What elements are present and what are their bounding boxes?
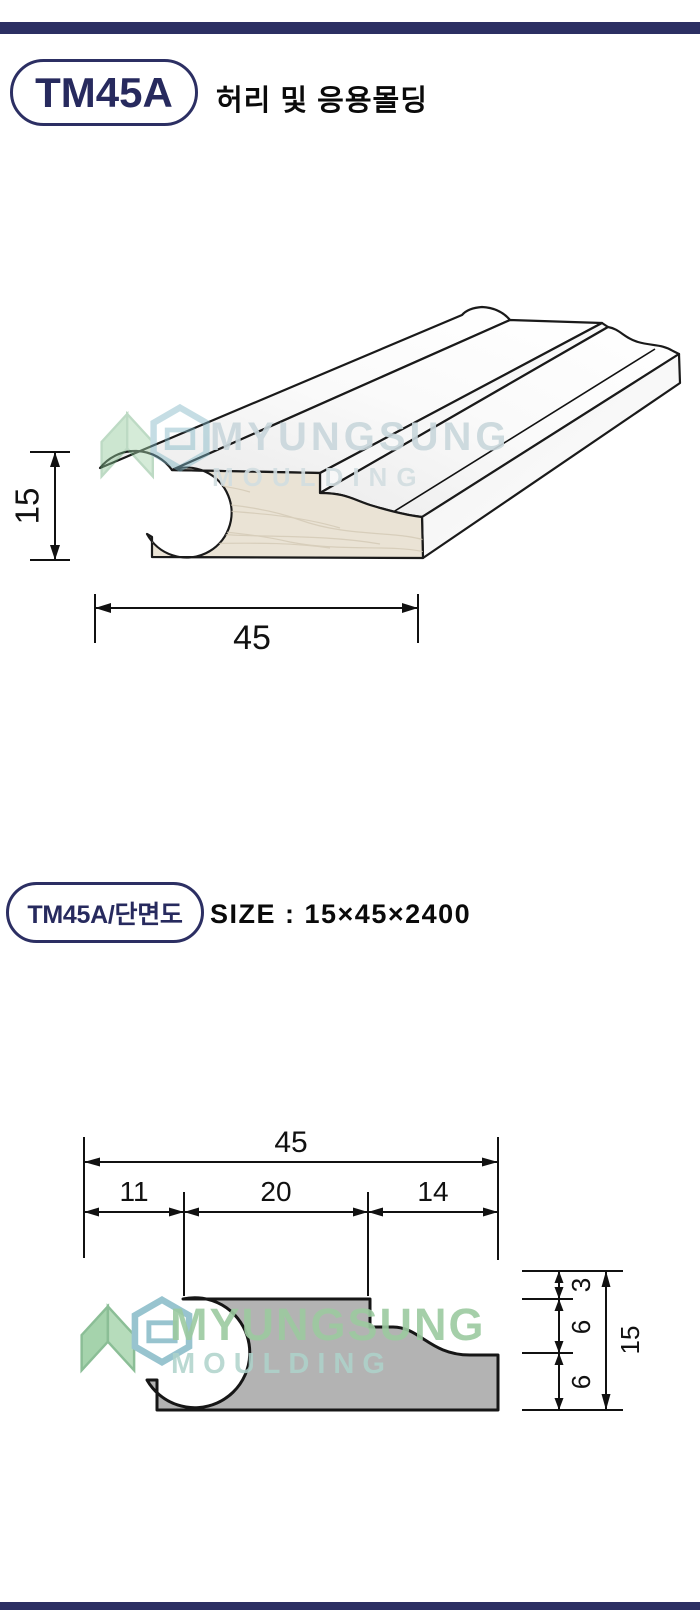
dim-total-height: 15 — [602, 1271, 645, 1410]
dim-width-45: 45 — [95, 594, 418, 650]
watermark-sub-text: MOULDING — [171, 1348, 393, 1380]
dim-height-15: 15 — [9, 452, 70, 560]
bottom-accent-bar — [0, 1602, 700, 1610]
product-code-badge: TM45A — [10, 59, 198, 126]
perspective-drawing: 15 45 MYUNGSUNG MOULDING — [0, 280, 700, 650]
top-accent-bar — [0, 22, 700, 34]
height-label: 15 — [9, 488, 46, 525]
dim-top-segments: 11 20 14 — [84, 1176, 498, 1296]
segment-20-label: 20 — [260, 1176, 291, 1207]
total-width-label: 45 — [274, 1126, 307, 1159]
segment-11-label: 11 — [119, 1176, 148, 1207]
watermark-brand-text: MYUNGSUNG — [210, 415, 510, 459]
size-spec: SIZE : 15×45×2400 — [210, 899, 471, 930]
product-category-title: 허리 및 응용몰딩 — [216, 77, 428, 119]
right-6b-label: 6 — [566, 1375, 596, 1389]
section-code-badge: TM45A/단면도 — [6, 882, 204, 943]
total-height-label: 15 — [615, 1326, 645, 1355]
watermark-sub-text: MOULDING — [212, 462, 426, 492]
section-code: TM45A/단면도 — [27, 895, 182, 931]
catalog-page: TM45A 허리 및 응용몰딩 — [0, 0, 700, 1610]
cross-section-drawing: MYUNGSUNG MOULDING 45 11 20 14 — [0, 1100, 700, 1440]
segment-14-label: 14 — [417, 1176, 448, 1207]
watermark-brand-text: MYUNGSUNG — [170, 1299, 486, 1350]
right-6a-label: 6 — [566, 1320, 596, 1334]
width-label: 45 — [233, 619, 271, 650]
right-3-label: 3 — [566, 1278, 596, 1292]
product-code: TM45A — [35, 69, 173, 117]
dim-right-segments: 3 6 6 — [522, 1271, 623, 1410]
